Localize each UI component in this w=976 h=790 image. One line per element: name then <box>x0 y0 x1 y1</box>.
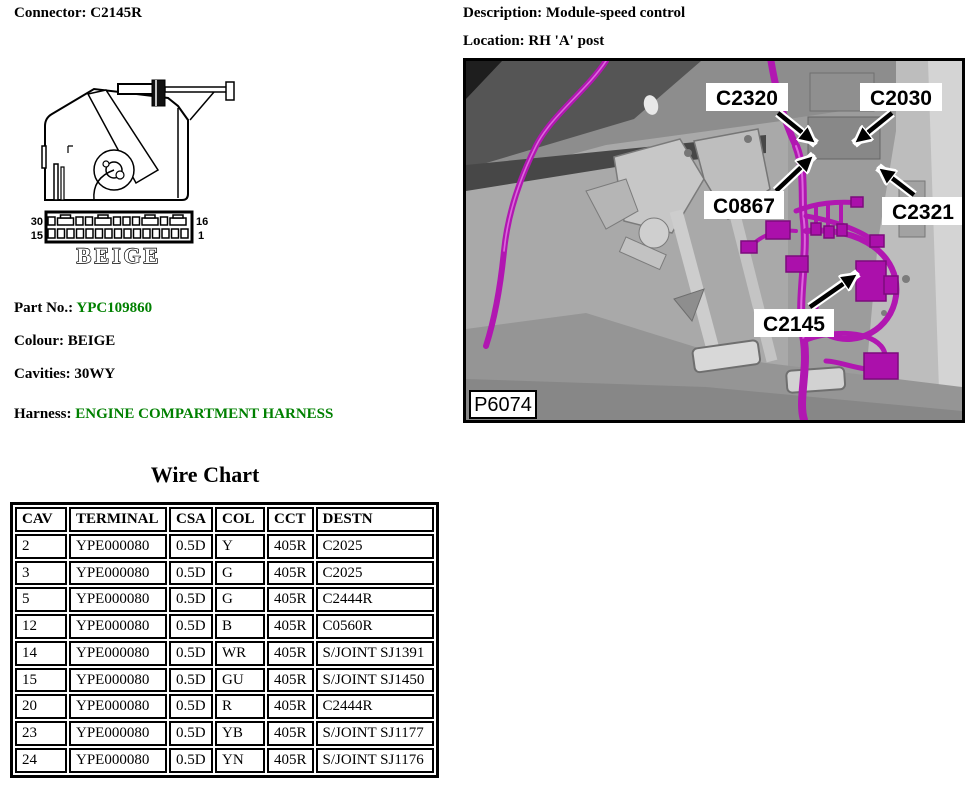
table-cell: B <box>215 614 265 639</box>
table-row: 15YPE0000800.5DGU405RS/JOINT SJ1450 <box>15 668 434 693</box>
table-cell: 405R <box>267 748 314 773</box>
page: Connector: C2145R Description: Module-sp… <box>0 0 976 790</box>
callout-c2321: C2321 <box>892 201 954 224</box>
table-cell: YPE000080 <box>69 721 167 746</box>
callout-c0867: C0867 <box>713 195 775 218</box>
table-cell: 3 <box>15 561 67 586</box>
table-cell: 405R <box>267 614 314 639</box>
table-cell: 0.5D <box>169 534 213 559</box>
wire-chart-table: CAVTERMINALCSACOLCCTDESTN 2YPE0000800.5D… <box>10 502 439 778</box>
harness-value: ENGINE COMPARTMENT HARNESS <box>75 406 333 422</box>
table-cell: 5 <box>15 587 67 612</box>
colour-line: Colour: BEIGE <box>14 333 115 350</box>
table-cell: 0.5D <box>169 721 213 746</box>
connector-colour-text: BEIGE <box>77 243 162 268</box>
pin-number-top-right: 16 <box>196 216 208 228</box>
table-cell: YB <box>215 721 265 746</box>
location-value: RH 'A' post <box>528 33 604 49</box>
table-cell: 0.5D <box>169 668 213 693</box>
pin-number-top-left: 30 <box>31 216 43 228</box>
callout-c2030: C2030 <box>870 87 932 110</box>
table-cell: G <box>215 587 265 612</box>
table-cell: 405R <box>267 587 314 612</box>
figure-id: P6074 <box>474 394 532 416</box>
table-cell: 0.5D <box>169 587 213 612</box>
table-cell: C2444R <box>316 587 434 612</box>
pin-number-bottom-left: 15 <box>31 230 43 242</box>
table-cell: 0.5D <box>169 614 213 639</box>
column-header: DESTN <box>316 507 434 532</box>
part-no-label: Part No.: <box>14 300 73 316</box>
location-photo-svg: C2320 C2030 C0867 C2321 C2145 P6074 <box>466 61 962 420</box>
table-cell: S/JOINT SJ1391 <box>316 641 434 666</box>
table-cell: C0560R <box>316 614 434 639</box>
table-cell: Y <box>215 534 265 559</box>
connector-drawing-svg: 30 15 16 1 BEIGE <box>18 58 268 273</box>
table-row: 23YPE0000800.5DYB405RS/JOINT SJ1177 <box>15 721 434 746</box>
table-cell: 405R <box>267 668 314 693</box>
table-cell: 405R <box>267 641 314 666</box>
callout-c2145: C2145 <box>763 313 825 336</box>
column-header: CSA <box>169 507 213 532</box>
location-heading: Location: RH 'A' post <box>463 33 604 50</box>
cpa-cylinder <box>152 80 165 106</box>
table-cell: 20 <box>15 694 67 719</box>
harness-line: Harness: ENGINE COMPARTMENT HARNESS <box>14 406 333 423</box>
part-no-line: Part No.: YPC109860 <box>14 300 152 317</box>
wire-chart-title: Wire Chart <box>10 462 400 488</box>
pin-cavities-bottom-row <box>48 229 188 238</box>
table-cell: C2025 <box>316 534 434 559</box>
colour-label: Colour: <box>14 333 64 349</box>
table-cell: YPE000080 <box>69 614 167 639</box>
table-row: 20YPE0000800.5DR405RC2444R <box>15 694 434 719</box>
table-cell: 405R <box>267 721 314 746</box>
table-cell: 0.5D <box>169 694 213 719</box>
part-no-value: YPC109860 <box>76 300 152 316</box>
table-row: 5YPE0000800.5DG405RC2444R <box>15 587 434 612</box>
table-row: 12YPE0000800.5DB405RC0560R <box>15 614 434 639</box>
table-cell: YPE000080 <box>69 668 167 693</box>
column-header: TERMINAL <box>69 507 167 532</box>
table-cell: YPE000080 <box>69 694 167 719</box>
location-label: Location: <box>463 33 525 49</box>
table-cell: S/JOINT SJ1176 <box>316 748 434 773</box>
table-cell: YPE000080 <box>69 587 167 612</box>
cavities-value: 30WY <box>74 366 115 382</box>
connector-housing <box>42 82 234 200</box>
colour-value: BEIGE <box>68 333 116 349</box>
table-cell: 23 <box>15 721 67 746</box>
table-cell: YPE000080 <box>69 641 167 666</box>
table-cell: YN <box>215 748 265 773</box>
table-cell: 2 <box>15 534 67 559</box>
table-cell: 14 <box>15 641 67 666</box>
pin-number-bottom-right: 1 <box>198 230 204 242</box>
connector-heading: Connector: C2145R <box>14 5 142 22</box>
table-cell: S/JOINT SJ1450 <box>316 668 434 693</box>
connector-line-art: 30 15 16 1 BEIGE <box>18 58 268 273</box>
description-value: Module-speed control <box>546 5 685 21</box>
table-row: 3YPE0000800.5DG405RC2025 <box>15 561 434 586</box>
table-cell: 0.5D <box>169 748 213 773</box>
table-cell: 405R <box>267 561 314 586</box>
table-cell: 405R <box>267 534 314 559</box>
connector-value: C2145R <box>90 5 142 21</box>
table-cell: C2025 <box>316 561 434 586</box>
table-cell: YPE000080 <box>69 748 167 773</box>
cavities-line: Cavities: 30WY <box>14 366 115 383</box>
column-header: COL <box>215 507 265 532</box>
cavities-label: Cavities: <box>14 366 71 382</box>
harness-label: Harness: <box>14 406 72 422</box>
table-cell: 24 <box>15 748 67 773</box>
table-cell: YPE000080 <box>69 561 167 586</box>
table-row: 24YPE0000800.5DYN405RS/JOINT SJ1176 <box>15 748 434 773</box>
table-row: 14YPE0000800.5DWR405RS/JOINT SJ1391 <box>15 641 434 666</box>
table-cell: C2444R <box>316 694 434 719</box>
table-cell: 12 <box>15 614 67 639</box>
pin-face-diagram: 30 15 16 1 BEIGE <box>31 212 209 268</box>
pin-cavities-top-row <box>48 215 186 225</box>
table-cell: YPE000080 <box>69 534 167 559</box>
description-label: Description: <box>463 5 542 21</box>
wire-chart-body: 2YPE0000800.5DY405RC20253YPE0000800.5DG4… <box>15 534 434 773</box>
table-cell: 0.5D <box>169 561 213 586</box>
photo-figure: C2320 C2030 C0867 C2321 C2145 P6074 <box>463 58 965 423</box>
table-row: 2YPE0000800.5DY405RC2025 <box>15 534 434 559</box>
table-cell: G <box>215 561 265 586</box>
wire-chart-header: CAVTERMINALCSACOLCCTDESTN <box>15 507 434 532</box>
description-heading: Description: Module-speed control <box>463 5 685 22</box>
column-header: CAV <box>15 507 67 532</box>
table-cell: S/JOINT SJ1177 <box>316 721 434 746</box>
callout-c2320: C2320 <box>716 87 778 110</box>
table-cell: 0.5D <box>169 641 213 666</box>
table-cell: 405R <box>267 694 314 719</box>
table-cell: WR <box>215 641 265 666</box>
connector-label: Connector: <box>14 5 86 21</box>
table-cell: GU <box>215 668 265 693</box>
table-cell: R <box>215 694 265 719</box>
table-cell: 15 <box>15 668 67 693</box>
column-header: CCT <box>267 507 314 532</box>
